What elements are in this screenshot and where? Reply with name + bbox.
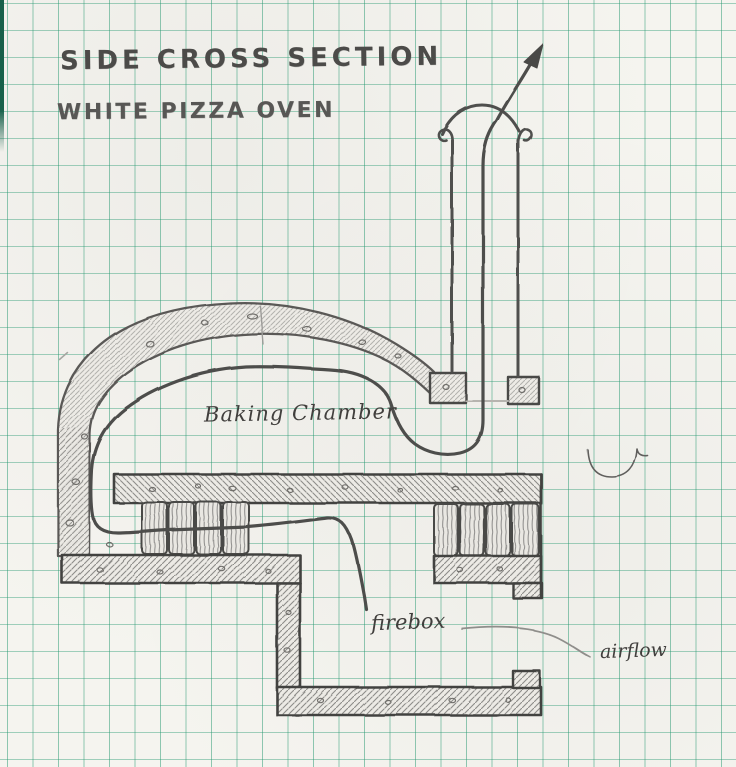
chimney-base-block-left xyxy=(430,373,466,403)
firebox-left-wall xyxy=(277,583,300,688)
hearth-slab xyxy=(114,474,541,503)
brick xyxy=(512,504,539,556)
brick xyxy=(142,502,167,554)
pencil-tick xyxy=(60,353,68,360)
brick-course-right xyxy=(434,504,539,556)
chimney-base-block-right xyxy=(508,377,539,404)
chimney-arrow-icon xyxy=(524,44,543,68)
page-title: SIDE CROSS SECTION xyxy=(60,42,443,77)
firebox-right-block xyxy=(513,671,540,688)
firebox-structure xyxy=(277,583,541,715)
base-slab-right xyxy=(434,556,541,583)
page-subtitle: WHITE PIZZA OVEN xyxy=(57,98,335,125)
hearth-assembly xyxy=(62,474,542,598)
doodle-arc xyxy=(588,449,648,477)
brick xyxy=(460,504,484,556)
airflow-label: airflow xyxy=(600,639,668,663)
chimney-cap-arc xyxy=(442,105,519,134)
baking-chamber-label: Baking Chamber xyxy=(204,399,397,426)
airflow-pointer-line xyxy=(462,627,590,657)
chimney-wall-left-curl xyxy=(438,129,452,143)
firebox-label: firebox xyxy=(371,609,446,636)
base-slab-right-step xyxy=(513,583,542,598)
brick xyxy=(434,504,458,556)
dome-left-wall-hatch xyxy=(59,428,89,555)
graph-paper-page: SIDE CROSS SECTION WHITE PIZZA OVEN Baki… xyxy=(0,0,736,767)
brick xyxy=(486,504,510,556)
